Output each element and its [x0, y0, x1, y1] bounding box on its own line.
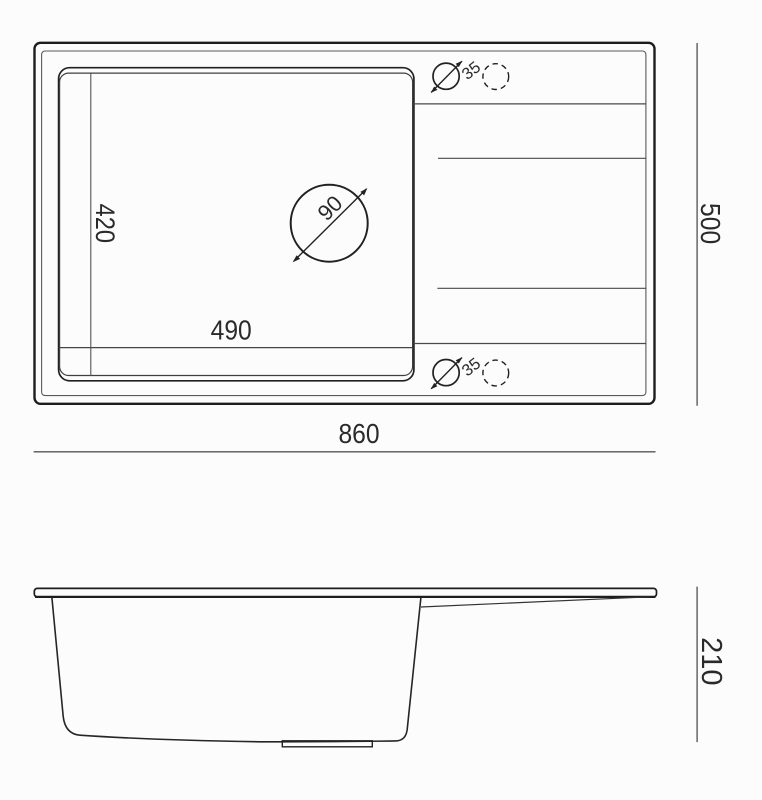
- svg-text:500: 500: [695, 203, 727, 244]
- svg-text:35: 35: [459, 58, 485, 83]
- svg-text:860: 860: [338, 418, 379, 450]
- svg-text:490: 490: [211, 314, 252, 346]
- svg-text:420: 420: [90, 204, 120, 243]
- svg-text:210: 210: [695, 637, 727, 685]
- svg-text:90: 90: [313, 191, 348, 226]
